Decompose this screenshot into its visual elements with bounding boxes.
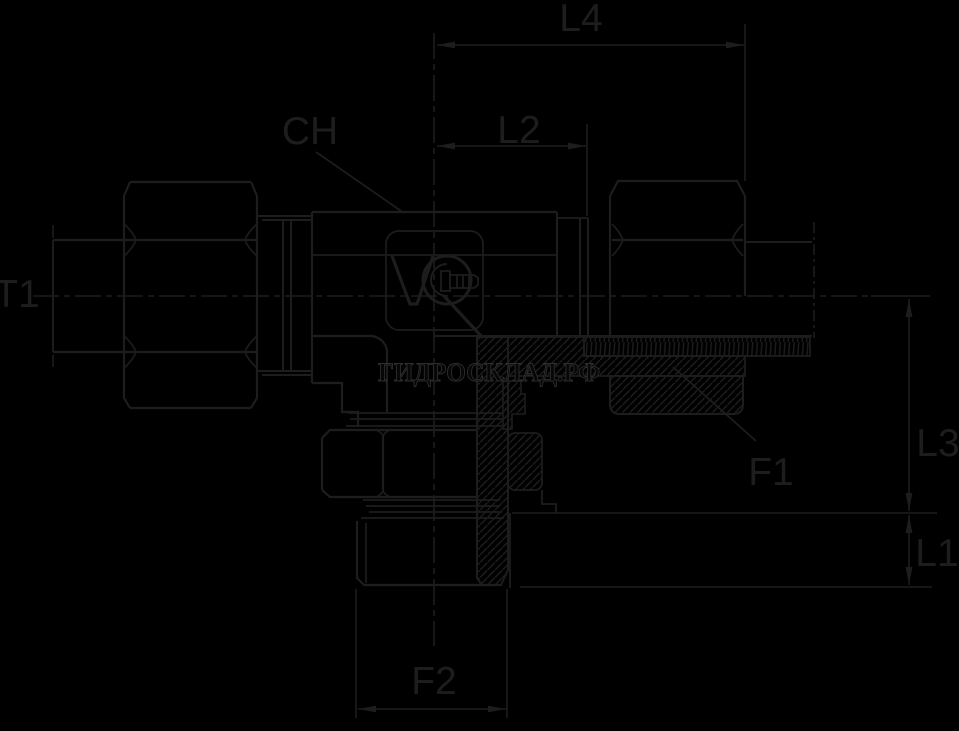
- dimension-label-f1: F1: [748, 451, 794, 494]
- dimension-label-l4: L4: [559, 0, 602, 40]
- technical-drawing-page: L4 L2 CH T1 F1 L3 L1 F2 ГИДРОСКЛАД.РФ: [0, 0, 959, 731]
- right-hex-nut: [610, 181, 812, 336]
- dimension-label-l2: L2: [497, 109, 540, 152]
- fitting-drawing-svg: L4 L2 CH T1 F1 L3 L1 F2 ГИДРОСКЛАД.РФ: [0, 0, 959, 731]
- section-break-line: [444, 296, 483, 338]
- bottom-hex-nut: [322, 430, 477, 497]
- dimension-label-ch: CH: [282, 110, 338, 153]
- ch-leader-line: [316, 152, 404, 213]
- thread-band: [584, 337, 810, 356]
- dimension-label-l3: L3: [916, 422, 959, 465]
- right-extension-lines: [512, 513, 937, 587]
- dimension-label-l1: L1: [915, 532, 958, 575]
- dimension-label-t1: T1: [0, 273, 40, 316]
- left-hex-nut: [124, 182, 257, 408]
- watermark-text: ГИДРОСКЛАД.РФ: [378, 358, 600, 387]
- hidden-end-line: [814, 222, 930, 338]
- washer-section: [503, 381, 525, 429]
- dim-L4: [437, 24, 745, 181]
- branch-nut-section: [508, 433, 542, 490]
- swivel-nut-section: [610, 376, 743, 414]
- dimension-label-f2: F2: [411, 660, 457, 703]
